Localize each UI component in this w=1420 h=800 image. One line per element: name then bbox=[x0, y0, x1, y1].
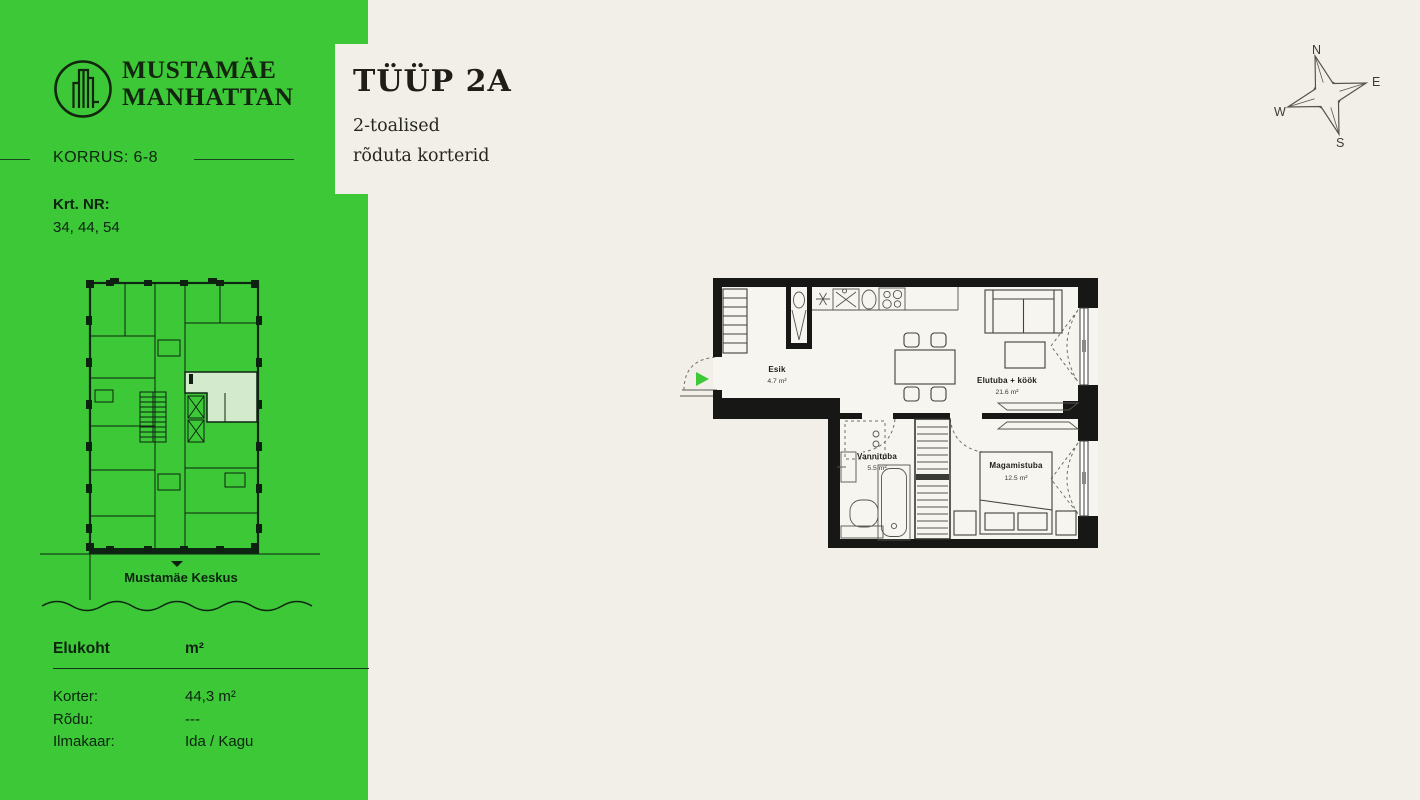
table-row: Ilmakaar: Ida / Kagu bbox=[53, 731, 369, 754]
brand-line-2: MANHATTAN bbox=[122, 84, 294, 111]
table-row: Korter: 44,3 m² bbox=[53, 686, 369, 709]
page: MUSTAMÄE MANHATTAN KORRUS: 6-8 Krt. NR: … bbox=[0, 0, 1420, 800]
compass-rose: N E S W bbox=[1272, 40, 1387, 155]
sidebar: MUSTAMÄE MANHATTAN KORRUS: 6-8 Krt. NR: … bbox=[0, 0, 368, 800]
location-caption: Mustamäe Keskus bbox=[111, 570, 251, 585]
compass-star-icon bbox=[1276, 44, 1378, 146]
room-area-magamistuba: 12.5 m² bbox=[1004, 475, 1028, 482]
title-block: TÜÜP 2A 2-toalised rõduta korterid bbox=[335, 44, 555, 194]
brand-logo-icon bbox=[52, 58, 114, 120]
row-value: Ida / Kagu bbox=[185, 731, 253, 754]
window-bedroom bbox=[1080, 441, 1088, 516]
south-arrow-icon bbox=[171, 561, 183, 567]
floor-range-label: KORRUS: 6-8 bbox=[53, 149, 158, 167]
header-m2: m² bbox=[185, 640, 204, 658]
compass-n-label: N bbox=[1312, 43, 1321, 57]
subtitle-line-1: 2-toalised bbox=[353, 111, 555, 141]
room-area-vannituba: 5.5 m² bbox=[867, 465, 887, 472]
korrus-rule-left bbox=[0, 159, 30, 160]
compass-e-label: E bbox=[1372, 75, 1380, 89]
row-label: Rõdu: bbox=[53, 709, 185, 732]
elevators bbox=[188, 396, 204, 442]
page-title: TÜÜP 2A bbox=[353, 64, 555, 99]
stairs bbox=[140, 392, 166, 442]
apartment-number-label: Krt. NR: bbox=[53, 196, 110, 213]
row-label: Korter: bbox=[53, 686, 185, 709]
subtitle-line-2: rõduta korterid bbox=[353, 141, 555, 171]
row-value: 44,3 m² bbox=[185, 686, 236, 709]
compass-w-label: W bbox=[1274, 105, 1286, 119]
window-living bbox=[1080, 308, 1088, 385]
table-row: Rõdu: --- bbox=[53, 709, 369, 732]
brand-line-1: MUSTAMÄE bbox=[122, 57, 294, 84]
room-area-elutuba: 21.6 m² bbox=[995, 389, 1019, 396]
row-label: Ilmakaar: bbox=[53, 731, 185, 754]
page-subtitle: 2-toalised rõduta korterid bbox=[353, 111, 555, 171]
compass-s-label: S bbox=[1336, 136, 1344, 150]
apartment-floorplan: Esik 4.7 m² Elutuba + köök 21.6 m² Vanni… bbox=[680, 262, 1110, 558]
apartment-numbers: 34, 44, 54 bbox=[53, 219, 120, 236]
room-label-esik: Esik bbox=[768, 365, 786, 374]
area-table: Elukoht m² Korter: 44,3 m² Rõdu: --- Ilm… bbox=[53, 640, 369, 754]
room-label-vannituba: Vannituba bbox=[857, 452, 897, 461]
entrance-door-arc bbox=[684, 357, 717, 390]
room-label-elutuba: Elutuba + köök bbox=[977, 376, 1037, 385]
highlighted-unit bbox=[185, 372, 257, 422]
water-wave-line bbox=[42, 602, 312, 611]
brand-name: MUSTAMÄE MANHATTAN bbox=[122, 57, 294, 110]
korrus-rule-right bbox=[194, 159, 294, 160]
room-area-esik: 4.7 m² bbox=[767, 378, 787, 385]
area-table-header: Elukoht m² bbox=[53, 640, 369, 669]
entrance-marker-icon bbox=[696, 372, 709, 386]
row-value: --- bbox=[185, 709, 200, 732]
room-label-magamistuba: Magamistuba bbox=[989, 461, 1043, 470]
header-elukoht: Elukoht bbox=[53, 640, 185, 658]
